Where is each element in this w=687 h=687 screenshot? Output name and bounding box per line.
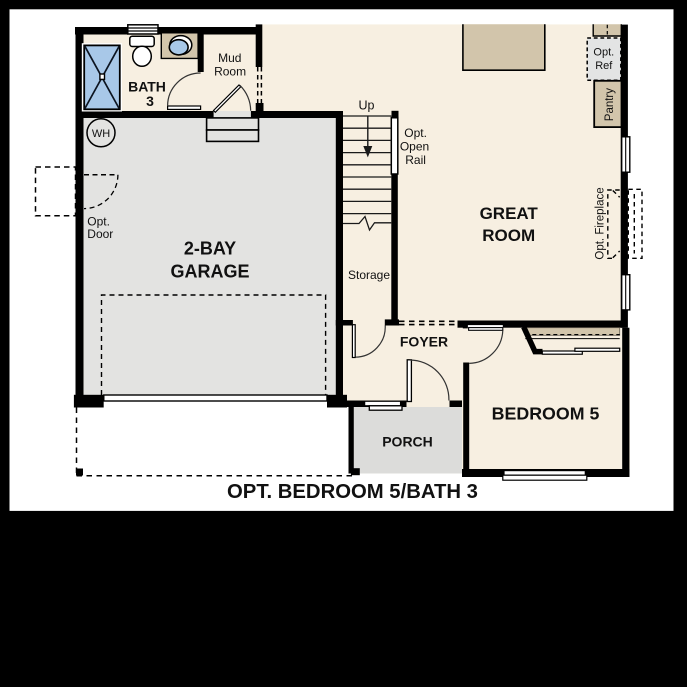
svg-text:Open: Open [400, 140, 429, 154]
svg-text:PORCH: PORCH [382, 434, 433, 450]
svg-text:GARAGE: GARAGE [170, 261, 249, 281]
svg-text:Opt.: Opt. [404, 126, 427, 140]
svg-text:Door: Door [87, 227, 113, 241]
svg-text:2-BAY: 2-BAY [184, 238, 236, 258]
svg-text:Ref: Ref [595, 60, 613, 72]
svg-text:FOYER: FOYER [400, 334, 448, 350]
svg-text:OPT. BEDROOM 5/BATH 3: OPT. BEDROOM 5/BATH 3 [227, 481, 478, 503]
svg-text:Opt. Fireplace: Opt. Fireplace [594, 187, 606, 259]
svg-text:Mud: Mud [218, 51, 241, 65]
svg-text:Rail: Rail [405, 153, 426, 167]
svg-text:3: 3 [146, 93, 154, 109]
svg-text:WH: WH [92, 128, 110, 140]
svg-text:Up: Up [359, 99, 375, 113]
svg-text:ROOM: ROOM [482, 226, 535, 245]
svg-text:Opt.: Opt. [593, 47, 614, 59]
svg-text:Storage: Storage [348, 268, 390, 282]
svg-text:BEDROOM 5: BEDROOM 5 [492, 404, 600, 424]
svg-text:Room: Room [214, 65, 246, 79]
svg-text:Pantry: Pantry [604, 88, 616, 121]
svg-text:GREAT: GREAT [480, 204, 539, 223]
